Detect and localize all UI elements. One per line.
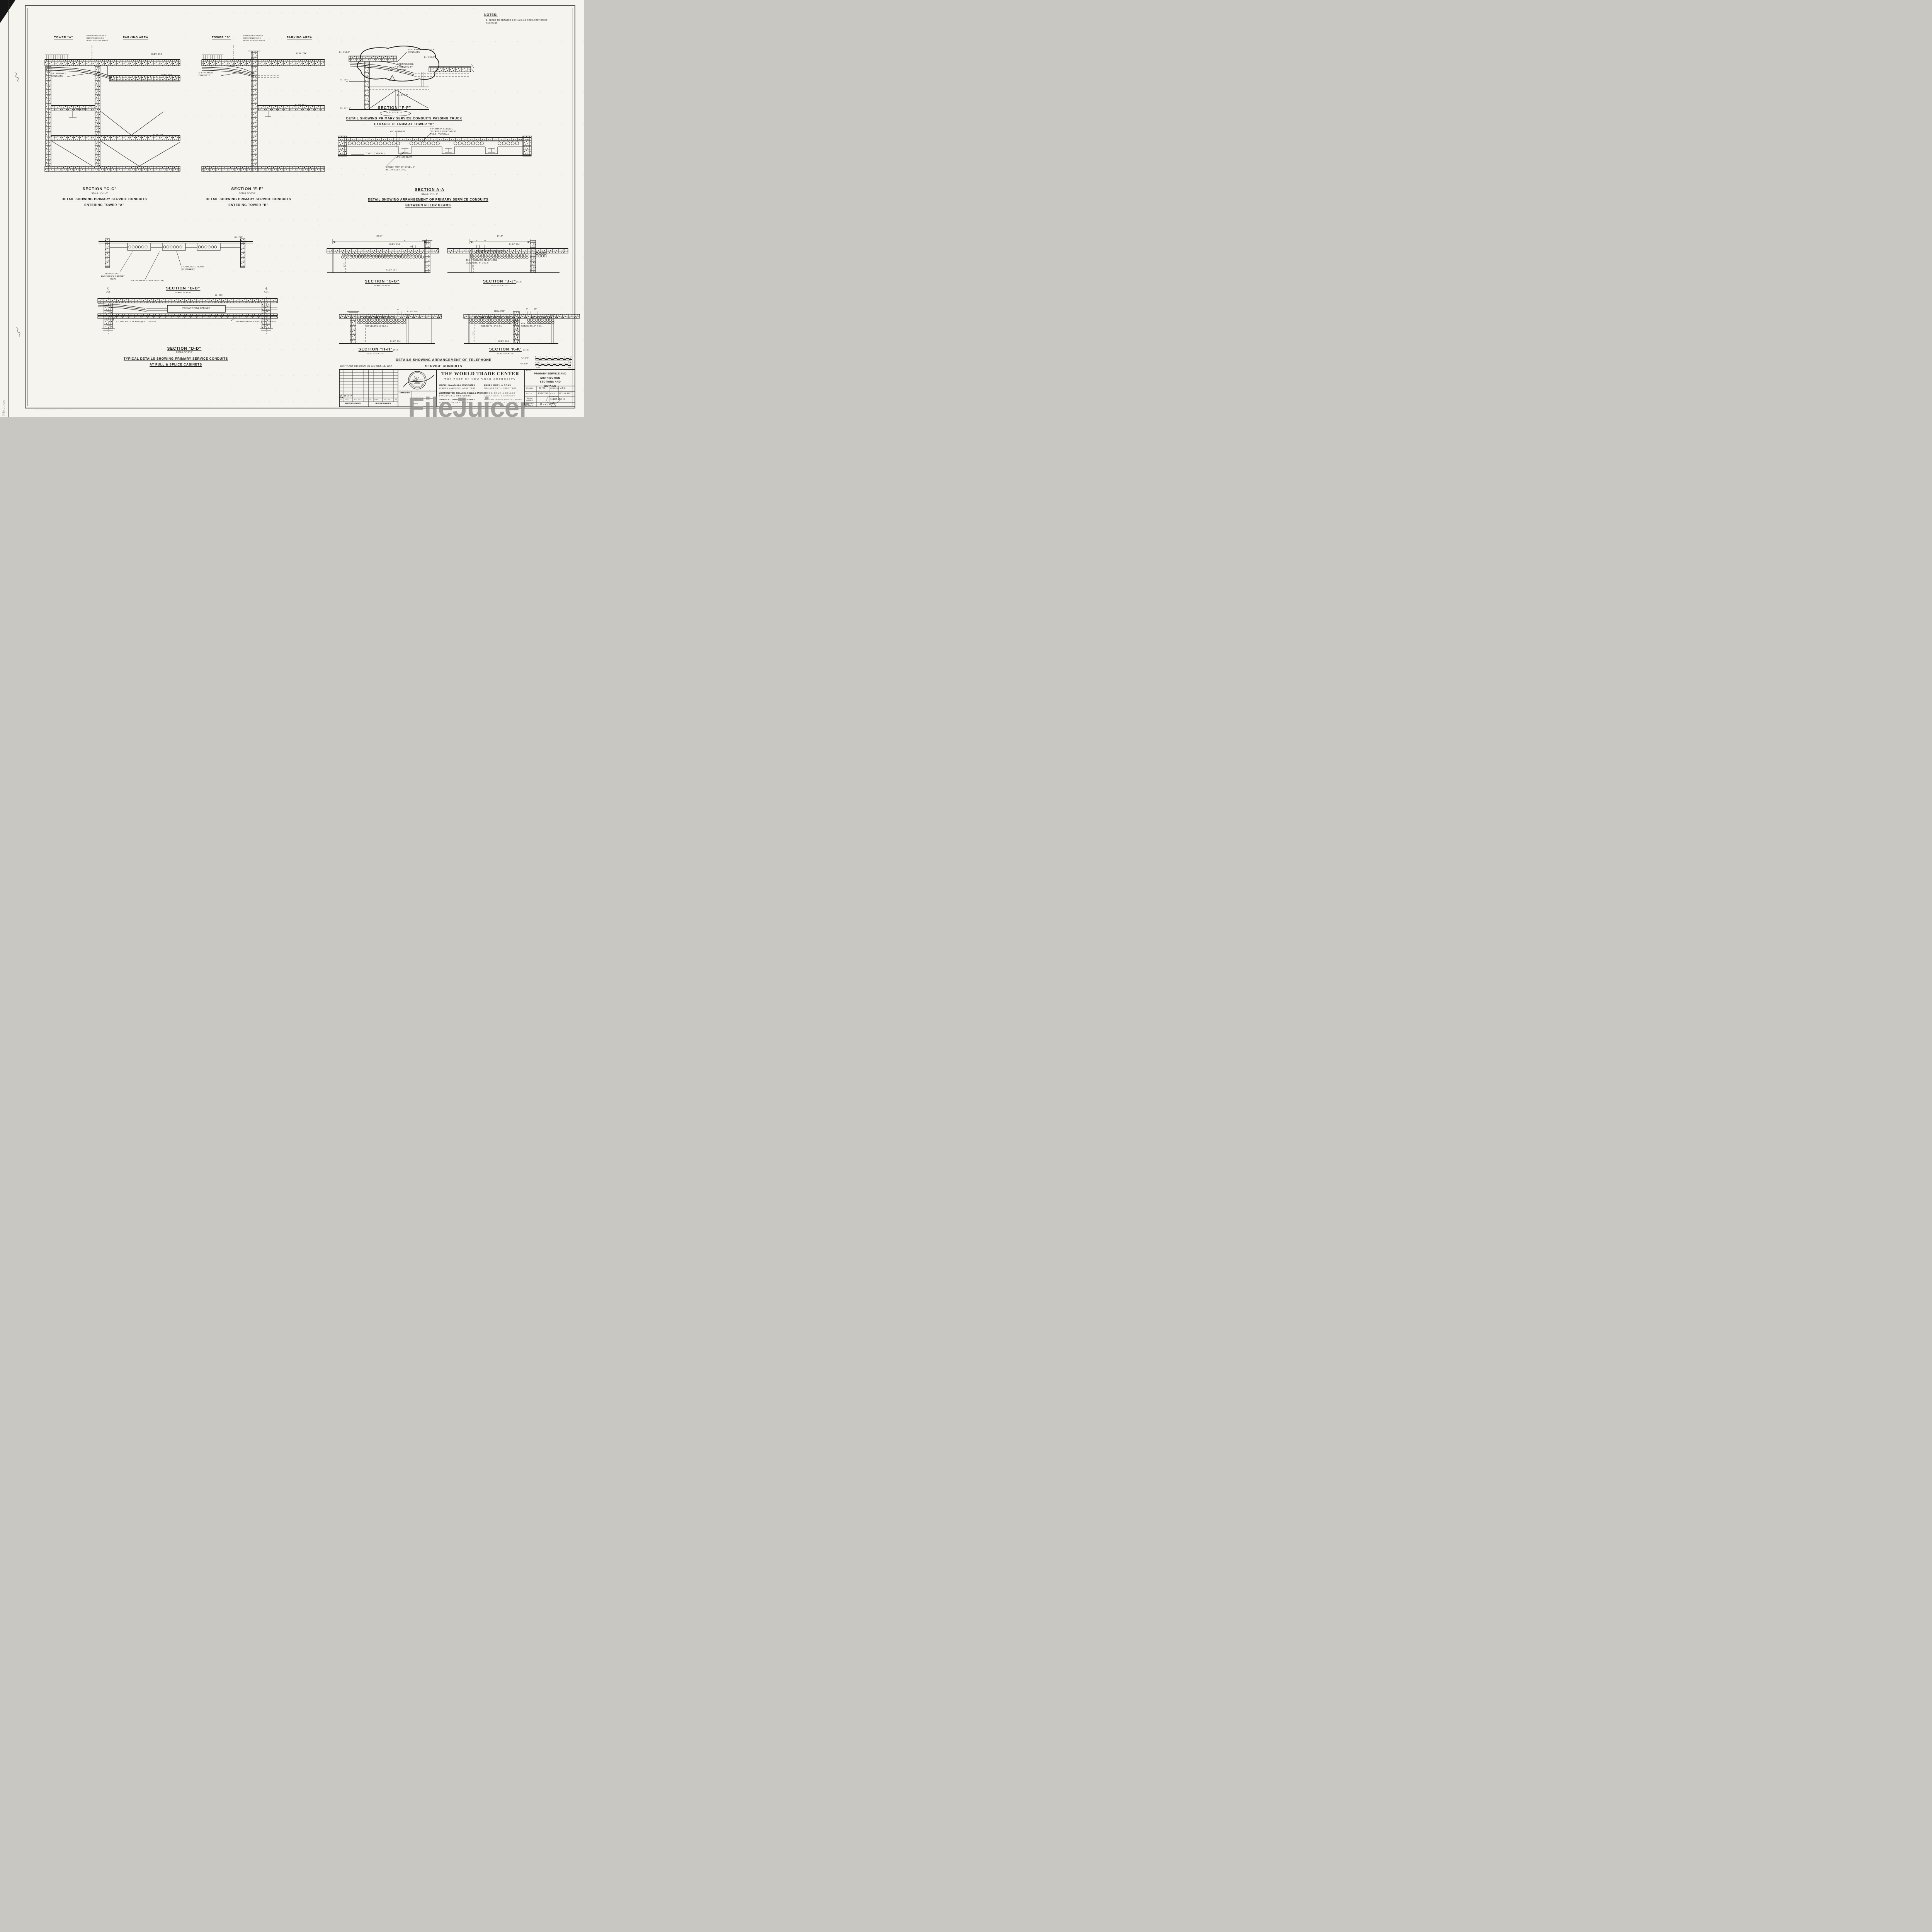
aa-title: SECTION A-A [415, 188, 445, 193]
ff-title: SECTION "F-F" [378, 106, 412, 111]
drawn-label: DRAWN [526, 387, 533, 389]
notes-item: 1. REFER TO DRAWING E-X-1 & E-X-2 FOR LO… [486, 19, 548, 25]
gg-vdim-label: 8'-1" [343, 263, 345, 267]
seal-name-text: JOSEPH R. LORING [412, 378, 423, 380]
section-gg-drawing [327, 238, 439, 281]
gg-dim-label: 30'-0" [376, 235, 382, 238]
checked-label: CHECKED [550, 387, 559, 389]
aa-dist-label: 4" PRIMARY SERVICE DISTRIBUTION CONDUIT … [430, 128, 456, 136]
bb-scale: SCALE: ½"=1'-0" [175, 292, 192, 294]
sheet-of-value: OF 12 [559, 398, 565, 401]
ee-title: SECTION 'E-E' [231, 187, 264, 192]
cc-elev-284: ELEV. 284' [76, 108, 87, 111]
ff-el-284: EL. 284'-0" [340, 79, 351, 82]
bar2-tick: 5' [565, 362, 566, 364]
bar1-ratio: ¼"= 1'0" [521, 357, 529, 359]
ee-caption-2: ENTERING TOWER "B" [228, 203, 268, 207]
firm-1-role: RICHARD ROTH, ARCHITECT [484, 387, 517, 389]
drawn-value: R.F.H. [539, 387, 546, 390]
checked-value: J.R.L. [560, 387, 566, 390]
ff-el-290: EL. 290'-0" [424, 56, 435, 59]
gg-d6-label: 6" [404, 240, 406, 241]
rev-h-by2: BY [395, 399, 397, 401]
bar1-tick: 10 [570, 356, 571, 358]
firm-0-name: MINORU YAMASAKI & ASSOCIATES [439, 384, 475, 387]
dd-caption-1: TYPICAL DETAILS SHOWING PRIMARY SERVICE … [124, 357, 228, 361]
dd-cabinet-label: PRIMARY PULL CABINET [182, 307, 210, 310]
seal-bottom-text: STATE OF NEW YORK [338, 367, 424, 388]
kk-right-label: 41-4" SERVICE TELEPHONE CONDUITS -6" O.C… [521, 323, 551, 328]
notes-title: NOTES: [484, 13, 498, 17]
dd-col-left: COL [106, 291, 111, 294]
firm-1-name: EMERY ROTH & SONS [484, 384, 511, 387]
film-edge [8, 0, 9, 417]
ff-caption-1: DETAIL SHOWING PRIMARY SERVICE CONDUITS … [346, 117, 462, 121]
cc-elev-294: ELEV. 294' [151, 53, 162, 56]
rev-h-no2: NO. [369, 399, 372, 401]
bar2-tick: 6' [570, 362, 571, 364]
ff-el-279: EL. 279'-3" [397, 94, 408, 97]
hh-nic-label: (N.I.C.) [393, 349, 400, 351]
cc-title: SECTION "C-C" [83, 187, 117, 192]
ff-el-294: EL. 294'-0" [339, 51, 350, 54]
bar2-ratio: ½"=1'-0" [520, 363, 528, 365]
cc-extcol-label: EXTERIOR COLUMN REFERENCE LINE (EAST SID… [87, 35, 108, 42]
cc-elev-274: ELEV. 274' [153, 134, 164, 136]
section-hh-drawing [339, 311, 442, 352]
ff-sprayed-label: SPRAYED FIRE- PROOFING BY OTHERS [397, 63, 414, 71]
sheet-value: SHEET 4 [550, 398, 559, 401]
kk-title: SECTION 'K-K' [489, 347, 522, 352]
svg-text:STATE OF NEW YORK: STATE OF NEW YORK [338, 367, 424, 388]
jj-nic-label: (N.I.C.) [516, 281, 522, 283]
kk-vdim-label: 7'-0" [472, 332, 474, 335]
jj-elev-294: ELEV. 294' [509, 243, 520, 246]
titlebox-label: TITLE [526, 369, 531, 371]
hh-conduits-label: 96-4" SERVICE TELEPHONE CONDUITS -6" O.C… [366, 323, 396, 328]
filejuicer-watermark: FileJuicer [408, 392, 529, 417]
filejuicer-side-watermark: File Juicer [2, 400, 5, 416]
dd-cl-right: ℄ [266, 287, 268, 291]
aa-filler-label: FILLER BEAM [397, 156, 412, 159]
hh-d6-label: 6" [397, 309, 399, 311]
date-label: DATE [550, 393, 555, 395]
bar1-tick: 2 [546, 356, 547, 358]
aa-caption-2: BETWEEN FILLER BEAMS [405, 204, 451, 208]
project-title: THE WORLD TRADE CENTER [441, 371, 519, 377]
hh-elev-284: ELEV. 284' [390, 340, 401, 343]
ee-conduits-label: 6-4" PRIMARY CONDUITS [199, 72, 214, 77]
ee-caption-1: DETAIL SHOWING PRIMARY SERVICE CONDUITS [206, 197, 291, 202]
bar1-tick: 6 [558, 356, 559, 358]
kk-elev-294: ELEV. 294' [494, 310, 505, 313]
kk-left-label: 79-4" SERVICE TELEPHONE CONDUITS -6" O.C… [481, 323, 511, 328]
section-dd-drawing [98, 297, 277, 335]
ee-scale: SCALE: ½"=1'-0" [239, 192, 256, 195]
section-ff-drawing [338, 44, 539, 120]
microprint: ····· ···· ···· ········· ·· · · ·······… [36, 409, 75, 410]
dd-title: SECTION "D-D" [167, 347, 202, 352]
bb-plank-label: 2" CONCRETE PLANK (BY OTHERS) [181, 266, 204, 271]
cc-conduits-label: 5-4" PRIMARY CONDUITS [51, 73, 66, 78]
tel-caption-1: DETAILS SHOWING ARRANGEMENT OF TELEPHONE [396, 358, 492, 362]
drawing-number-value: E-X-4 [540, 403, 551, 406]
sheet-title: PRIMARY SERVICE AND DISTRIBUTION SECTION… [533, 372, 567, 388]
dd-planks-label: 2" CONCRETE PLANKS (BY OTHERS) [116, 321, 156, 323]
aa-elev-290: ELEV. 290' [519, 139, 529, 141]
rev-h-by: BY [366, 399, 367, 401]
aa-min-label: 4½" MINIMUM [390, 131, 405, 133]
bar2-tick: 3' [553, 362, 554, 364]
drawing-rev-marker: 1 [553, 404, 553, 405]
hh-title: SECTION "H-H" [359, 347, 393, 352]
section-ee-drawing [197, 43, 325, 179]
binder-mark [12, 72, 22, 82]
binder-mark [14, 327, 23, 337]
ee-elev-284: ELEV. 284' [295, 104, 306, 107]
rev-label-1: REVISIONS [345, 403, 361, 405]
rev-h-date: DATE [345, 399, 349, 401]
gg-elev-284: ELEV. 284' [386, 269, 397, 272]
bb-pull-label: PRIMARY PULL AND SPLICE CABINET (TYP) [101, 273, 124, 281]
rev-h-bul: BUL. NO. [354, 399, 361, 401]
scale-value: AS NOTED [538, 393, 549, 395]
kk-d6-label: 6" [526, 308, 528, 310]
jj-scale: SCALE: ¼"=1'-0" [492, 285, 508, 287]
cc-caption-2: ENTERING TOWER "A" [84, 203, 124, 207]
jj-d10-label: 10" [484, 240, 486, 241]
rev-h-bul2: BUL. NO. [384, 399, 390, 401]
dd-scale: SCALE: ½"=1'-0" [176, 351, 193, 354]
section-cc-drawing [30, 43, 181, 179]
kk-nic-label: (N.I.C.) [523, 349, 529, 351]
cc-scale: SCALE: ½"=1'-0" [92, 192, 108, 195]
bb-title: SECTION "B-B" [166, 286, 201, 291]
bar2-tick: 1' [541, 362, 542, 364]
cc-caption-1: DETAIL SHOWING PRIMARY SERVICE CONDUITS [61, 197, 147, 202]
cc-tower-label: TOWER "A" [54, 36, 73, 39]
firm-0-role: MINORU YAMASAKI, ARCHITECT [439, 387, 476, 389]
dd-col-right: COL [264, 291, 269, 294]
aa-scale: SCALE: ½"=1'-0" [422, 193, 438, 196]
ff-rev-marker: 1 [391, 77, 393, 79]
kk-scale: SCALE: ¼"=1'-0" [497, 353, 514, 355]
ee-parking-label: PARKING AREA [287, 36, 312, 39]
bar1-tick: 4 [552, 356, 553, 358]
rev-h-no: NO. [340, 399, 342, 401]
kk-elev-284: ELEV. 284' [498, 340, 509, 343]
bar1-tick: 0 [540, 356, 541, 358]
hh-scale: SCALE: ¼"=1'-0" [367, 353, 384, 355]
bar2-tick: 2' [547, 362, 548, 364]
aa-caption-1: DETAIL SHOWING ARRANGEMENT OF PRIMARY SE… [368, 198, 488, 202]
gg-title: SECTION "G-G" [365, 279, 400, 284]
bar1-tick: 8 [564, 356, 565, 358]
rev-h-date2: DATE [374, 399, 378, 401]
ff-el-274: EL. 274'-0" [340, 107, 351, 110]
gg-elev-294: ELEV. 294' [389, 243, 400, 246]
dd-cl-left: ℄ [107, 287, 109, 291]
ff-caption-2: EXHAUST PLENUM AT TOWER "B" [374, 122, 434, 127]
jj-vdim-label: 7'-8" [471, 264, 473, 268]
gg-scale: SCALE: ¼"=1'-0" [374, 285, 391, 287]
ee-tower-label: TOWER "B" [212, 36, 231, 39]
section-bb-drawing [99, 239, 253, 291]
authority-title: THE PORT OF NEW YORK AUTHORITY [444, 378, 516, 381]
dd-caption-2: AT PULL & SPLICE CABINETS [150, 363, 202, 367]
cc-elev-290: ELEV. 290' [162, 74, 172, 77]
rev-label-2: REVISIONS [376, 403, 391, 405]
jj-conduits-label: 120-4" SERVICE TELEPHONE CONDUITS -6" O.… [466, 259, 497, 265]
ee-extcol-label: EXTERIOR COLUMN REFERENCE LINE (EAST SID… [243, 35, 265, 42]
jj-title: SECTION "J-J" [483, 279, 516, 284]
section-jj-drawing [447, 238, 568, 281]
cc-parking-label: PARKING AREA [123, 36, 148, 39]
bar2-tick: 4' [558, 362, 560, 364]
blueprint-sheet: NOTES: 1. REFER TO DRAWING E-X-1 & E-X-2… [0, 0, 584, 417]
ff-scale-cloud [380, 111, 411, 116]
dd-el-290: EL. 290' [215, 294, 223, 297]
jj-dim-label: 21'-0" [497, 235, 503, 238]
kk-d10-label: 10" [534, 308, 537, 310]
rev-entry-marker: 1 [340, 395, 341, 397]
date-value: OCT. 16, 1967 [558, 393, 571, 395]
bb-el-290: EL. 290' [235, 236, 243, 239]
ff-conduits-label: 15-4" PRIMARY SERVICE CONDUITS. [408, 49, 435, 54]
bar2-tick: 0 [535, 362, 536, 364]
gg-conduits-label: 96-4" SERVICE TELEPHONE CONDUITS-6" O.C.… [350, 255, 402, 258]
dd-fireproof-label: BEAM FIREPROOFING (BY OTHERS) [236, 321, 276, 323]
bar1-tick: 2 [535, 356, 536, 358]
rev-entry-date: 12-18-67 [344, 395, 352, 397]
jj-d6-label: 6" [476, 240, 478, 241]
ee-elev-294: ELEV. 294' [296, 53, 307, 55]
bb-conduits-label: 5-4" PRIMARY CONDUITS (TYP) [131, 280, 165, 282]
aa-girder-label: GIRDER (TOP OF STEEL -9" BELOW ELEV. 290… [386, 166, 415, 172]
aa-oc-label: 7" O.C. (TYPICAL) [366, 153, 384, 155]
hh-elev-294: ELEV. 294' [407, 311, 418, 313]
